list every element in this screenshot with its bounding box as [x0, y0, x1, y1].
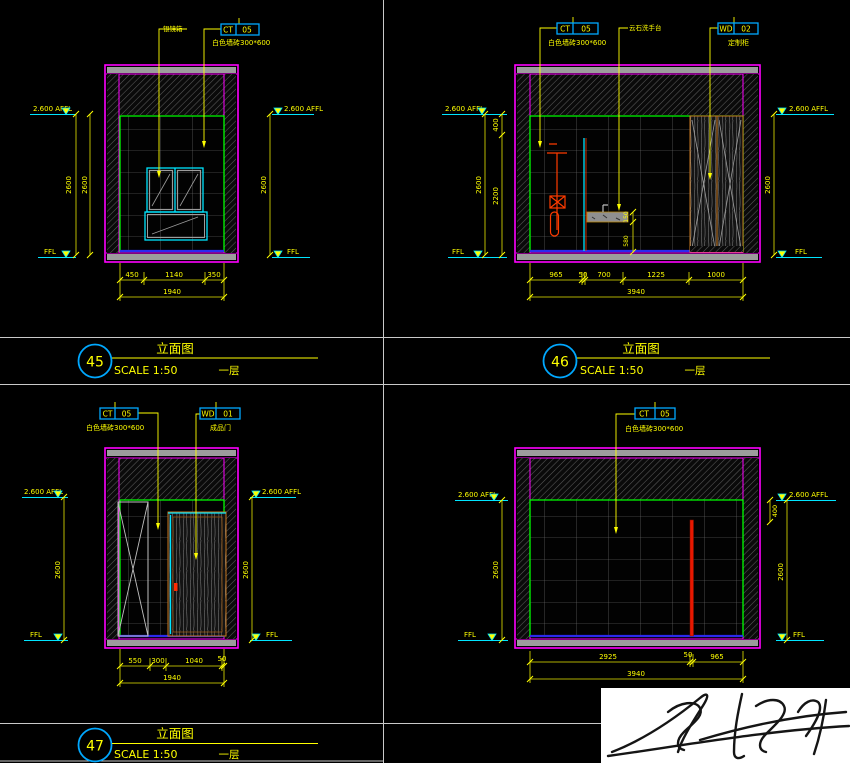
dim-label: 50 — [579, 271, 588, 279]
floor-label: 一层 — [219, 749, 240, 761]
dim-label: 350 — [207, 271, 220, 279]
dim-label: 700 — [597, 271, 610, 279]
tag-code: CT — [560, 25, 570, 34]
dims-bottom-48: 2925 50 965 3940 — [527, 651, 746, 683]
dim-label: 2600 — [492, 561, 500, 579]
panel-number: 47 — [86, 739, 104, 755]
cad-canvas: 银镜箱 CT 05 白色墙砖300*600 2.600 AFFL FFL 2.6… — [0, 0, 850, 763]
tag-note: 定制柜 — [728, 38, 749, 47]
dim-label: 965 — [549, 271, 562, 279]
dim-label: 2925 — [599, 653, 617, 661]
level-label-ffl: FFL — [793, 631, 805, 639]
dim-label: 400 — [771, 505, 779, 517]
tag-code: CT — [103, 410, 113, 419]
dim-label: 965 — [710, 653, 723, 661]
callout-label: 云石洗手台 — [629, 23, 662, 32]
dim-label: 2600 — [65, 176, 73, 194]
dim-label: 2600 — [54, 561, 62, 579]
elevation-45: 银镜箱 CT 05 白色墙砖300*600 2.600 AFFL FFL 2.6… — [30, 18, 323, 301]
panel-title: 立面图 — [622, 341, 660, 356]
ceiling-slab — [517, 67, 758, 73]
dim-label: 2600 — [764, 176, 772, 194]
dim-label: 2600 — [81, 176, 89, 194]
tag-note: 白色墙砖300*600 — [625, 424, 683, 433]
dim-label: 1000 — [707, 271, 725, 279]
tag-number: 05 — [122, 410, 132, 419]
dims-bottom-46: 965 50 700 1225 1000 3940 — [527, 263, 746, 301]
dim-label: 2600 — [475, 176, 483, 194]
elevation-46: 150 580 CT 05 白色墙砖300*600 云石洗手台 — [442, 17, 834, 301]
dim-label: 550 — [128, 657, 141, 665]
level-label-ffl: FFL — [44, 248, 56, 256]
level-label-affl: 2.600 AFFL — [262, 488, 301, 496]
door — [168, 512, 226, 636]
floor-label: 一层 — [219, 365, 240, 377]
dims-bottom-47: 550 300 1040 50 1940 — [117, 649, 227, 687]
dim-label: 2600 — [242, 561, 250, 579]
dim-label-total: 3940 — [627, 670, 645, 678]
dim-label: 450 — [125, 271, 138, 279]
bulkhead-hatch — [517, 74, 758, 115]
floor-slab — [107, 640, 236, 646]
dim-label: 50 — [684, 651, 693, 659]
dim-label: 50 — [218, 655, 227, 663]
dim-label-total: 1940 — [163, 288, 181, 296]
glass-screen-edge — [690, 520, 694, 636]
cabinet — [690, 116, 743, 252]
ceiling-slab — [517, 450, 758, 456]
level-label-ffl: FFL — [464, 631, 476, 639]
signature-watermark — [601, 688, 850, 763]
floor-label: 一层 — [685, 365, 706, 377]
level-label-ffl: FFL — [452, 248, 464, 256]
level-label-ffl: FFL — [287, 248, 299, 256]
level-label-affl: 2.600 AFFL — [789, 491, 828, 499]
tag-number: 05 — [242, 26, 252, 35]
bulkhead-hatch — [517, 458, 758, 500]
scale-label: SCALE 1:50 — [114, 748, 177, 761]
elevation-47: CT 05 白色墙砖300*600 WD 01 成品门 2.600 AFFL F… — [22, 402, 301, 687]
tag-code: CT — [223, 26, 233, 35]
panel-number: 45 — [86, 355, 104, 371]
dim-label: 150 — [623, 211, 630, 223]
dim-label: 2600 — [777, 563, 785, 581]
dim-label-total: 1940 — [163, 674, 181, 682]
floor-slab — [517, 640, 758, 646]
ceiling-slab — [107, 67, 236, 73]
callout-label: 银镜箱 — [163, 24, 183, 33]
dims-bottom-45: 450 1140 350 1940 — [117, 263, 227, 301]
cad-drawing: 银镜箱 CT 05 白色墙砖300*600 2.600 AFFL FFL 2.6… — [0, 0, 850, 763]
door-handle — [174, 583, 178, 591]
tile-wall — [530, 500, 743, 637]
tag-code: WD — [201, 410, 214, 419]
tag-number: 02 — [741, 25, 751, 34]
tag-note: 成品门 — [210, 423, 231, 432]
tag-note: 白色墙砖300*600 — [212, 38, 270, 47]
panel-number: 46 — [551, 355, 569, 371]
scale-label: SCALE 1:50 — [114, 364, 177, 377]
title-block-47: 47 立面图 SCALE 1:50 一层 — [79, 726, 319, 762]
tag-code: WD — [719, 25, 732, 34]
tag-note: 白色墙砖300*600 — [86, 423, 144, 432]
level-label-ffl: FFL — [795, 248, 807, 256]
title-block-46: 46 立面图 SCALE 1:50 一层 — [544, 341, 771, 378]
floor-slab — [517, 254, 758, 260]
bulkhead-hatch — [107, 458, 236, 500]
tag-number: 01 — [223, 410, 233, 419]
level-label-affl: 2.600 AFFL — [789, 105, 828, 113]
tag-number: 05 — [660, 410, 670, 419]
tag-note: 白色墙砖300*600 — [548, 38, 606, 47]
panel-title: 立面图 — [156, 726, 194, 741]
title-block-45: 45 立面图 SCALE 1:50 一层 — [79, 341, 319, 378]
tag-number: 05 — [581, 25, 591, 34]
dim-label: 1140 — [165, 271, 183, 279]
panel-title: 立面图 — [156, 341, 194, 356]
bulkhead-hatch — [107, 74, 236, 115]
dim-label: 1040 — [185, 657, 203, 665]
dim-label: 300 — [151, 657, 164, 665]
dim-label-total: 3940 — [627, 288, 645, 296]
tag-code: CT — [639, 410, 649, 419]
dim-label: 2200 — [492, 187, 500, 205]
ceiling-slab — [107, 450, 236, 456]
dim-label: 580 — [623, 235, 630, 247]
level-label-ffl: FFL — [30, 631, 42, 639]
dim-label: 2600 — [260, 176, 268, 194]
level-label-affl: 2.600 AFFL — [284, 105, 323, 113]
elevation-48: CT 05 白色墙砖300*600 2.600 AFFL FFL 2.600 A… — [455, 402, 836, 683]
dim-label: 1225 — [647, 271, 665, 279]
level-label-ffl: FFL — [266, 631, 278, 639]
scale-label: SCALE 1:50 — [580, 364, 643, 377]
floor-slab — [107, 254, 236, 260]
dim-label: 400 — [492, 118, 500, 131]
